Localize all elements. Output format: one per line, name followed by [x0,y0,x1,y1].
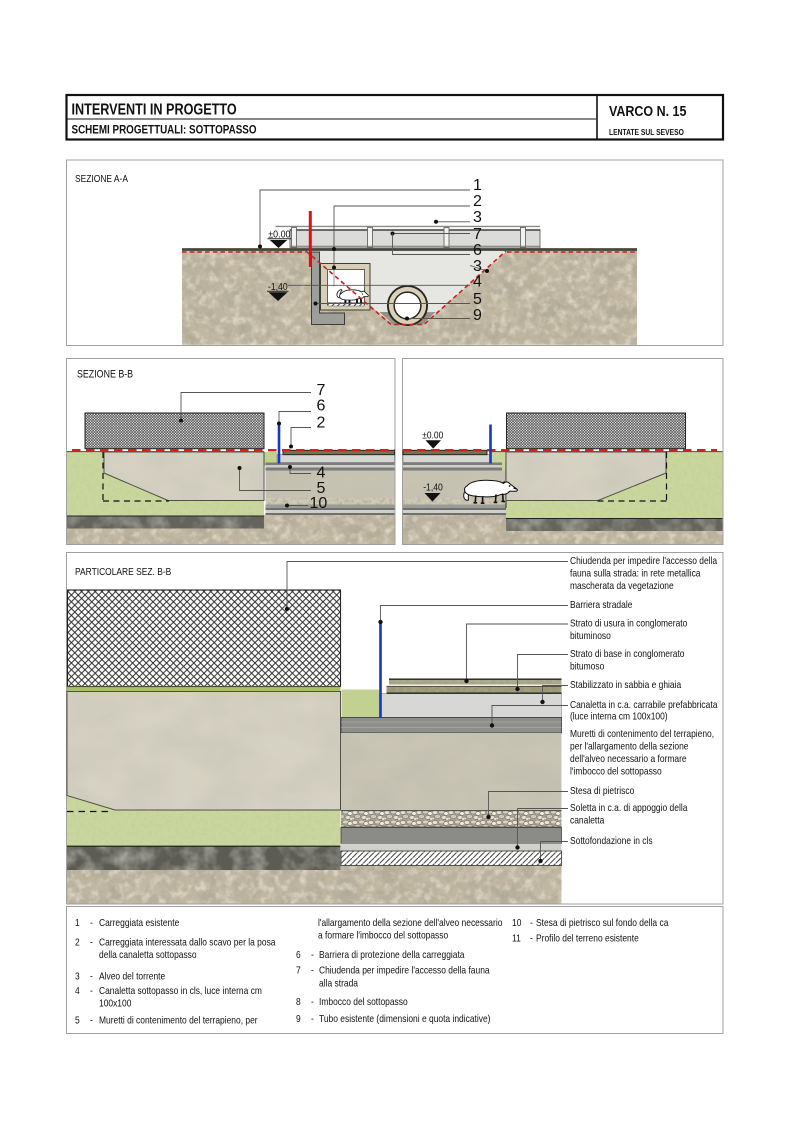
svg-text:PARTICOLARE SEZ. B-B: PARTICOLARE SEZ. B-B [75,567,171,578]
svg-text:Chiudenda per impedire l'acces: Chiudenda per impedire l'accesso della [570,556,717,567]
svg-text:5: 5 [473,291,482,308]
svg-text:100x100: 100x100 [99,999,132,1010]
svg-text:-: - [311,950,314,961]
svg-text:Strato di usura in conglomerat: Strato di usura in conglomerato [570,619,688,630]
svg-text:SEZIONE A-A: SEZIONE A-A [75,174,128,185]
svg-text:7: 7 [296,966,301,977]
svg-text:3: 3 [473,209,482,226]
svg-text:per l'allargamento della sezio: per l'allargamento della sezione [570,742,689,753]
svg-text:4: 4 [473,274,482,291]
svg-text:3: 3 [473,258,482,275]
svg-text:9: 9 [296,1014,301,1025]
svg-text:-1,40: -1,40 [423,481,443,493]
svg-text:1: 1 [473,177,482,194]
svg-text:INTERVENTI IN PROGETTO: INTERVENTI IN PROGETTO [72,102,237,119]
svg-text:Alveo del torrente: Alveo del torrente [99,972,165,983]
svg-text:1: 1 [75,918,80,929]
svg-text:2: 2 [473,193,482,210]
svg-text:-: - [90,918,93,929]
svg-text:Canaletta in c.a. carrabile pr: Canaletta in c.a. carrabile prefabbricat… [570,700,718,711]
svg-text:Soletta in c.a. di appoggio de: Soletta in c.a. di appoggio della [570,803,688,814]
svg-text:2: 2 [317,415,326,432]
svg-text:-: - [90,938,93,949]
svg-text:6: 6 [473,242,482,259]
svg-text:5: 5 [75,1016,80,1027]
svg-text:fauna sulla strada: in rete me: fauna sulla strada: in rete metallica [570,569,701,580]
svg-text:9: 9 [473,307,482,324]
svg-text:bitumoso: bitumoso [570,662,605,673]
svg-text:3: 3 [75,972,80,983]
svg-text:dell'alveo necessario a formar: dell'alveo necessario a formare [570,754,687,765]
svg-text:10: 10 [512,918,522,929]
svg-text:4: 4 [317,465,326,482]
svg-text:6: 6 [317,398,326,415]
svg-text:l'imbocco del sottopasso: l'imbocco del sottopasso [570,767,662,778]
svg-text:6: 6 [296,950,301,961]
svg-text:della canaletta sottopasso: della canaletta sottopasso [99,950,197,961]
svg-text:-: - [311,1014,314,1025]
svg-text:2: 2 [75,938,80,949]
svg-text:-: - [530,918,533,929]
svg-text:Stesa di pietrisco sul fondo d: Stesa di pietrisco sul fondo della ca [536,918,669,929]
svg-text:SCHEMI PROGETTUALI: SOTTOPASSO: SCHEMI PROGETTUALI: SOTTOPASSO [72,123,257,137]
svg-text:Barriera stradale: Barriera stradale [570,600,633,611]
svg-text:canaletta: canaletta [570,816,605,827]
svg-text:4: 4 [75,986,80,997]
svg-text:SEZIONE B-B: SEZIONE B-B [77,369,133,381]
svg-text:-: - [90,1016,93,1027]
svg-text:Carreggiata esistente: Carreggiata esistente [99,918,180,929]
svg-text:Chiudenda per impedire l'acces: Chiudenda per impedire l'accesso della f… [319,966,490,977]
svg-text:10: 10 [310,495,328,512]
svg-text:Imbocco del sottopasso: Imbocco del sottopasso [319,997,408,1008]
svg-text:11: 11 [512,934,521,945]
svg-text:bituminoso: bituminoso [570,631,611,642]
svg-text:Profilo del terreno esistente: Profilo del terreno esistente [536,934,639,945]
svg-text:Canaletta sottopasso in cls, l: Canaletta sottopasso in cls, luce intern… [99,986,262,997]
svg-text:Carreggiata interessata dallo: Carreggiata interessata dallo scavo per … [99,938,276,949]
svg-text:-: - [311,966,314,977]
svg-text:-: - [90,972,93,983]
svg-text:-: - [311,997,314,1008]
svg-text:mascherata da vegetazione: mascherata da vegetazione [570,581,674,592]
svg-text:7: 7 [473,226,482,243]
svg-text:7: 7 [317,382,326,399]
svg-text:Stesa di pietrisco: Stesa di pietrisco [570,786,635,797]
svg-text:Tubo esistente (dimensioni e q: Tubo esistente (dimensioni e quota indic… [319,1014,491,1025]
svg-text:Stabilizzato in sabbia e ghiai: Stabilizzato in sabbia e ghiaia [570,680,681,691]
svg-text:Strato di base in conglomerato: Strato di base in conglomerato [570,649,685,660]
svg-text:-: - [530,934,533,945]
svg-text:-: - [90,986,93,997]
svg-text:Sottofondazione in cls: Sottofondazione in cls [570,836,653,847]
svg-text:alla strada: alla strada [319,979,358,990]
svg-text:Barriera di protezione della c: Barriera di protezione della carreggiata [319,950,465,961]
svg-text:8: 8 [296,997,301,1008]
svg-text:LENTATE SUL SEVESO: LENTATE SUL SEVESO [609,128,684,137]
svg-text:VARCO N. 15: VARCO N. 15 [609,103,687,120]
svg-text:a formare l'imbocco del sottop: a formare l'imbocco del sottopasso [318,931,448,942]
svg-text:Muretti di contenimento del te: Muretti di contenimento del terrapieno, [570,729,714,740]
svg-text:±0.00: ±0.00 [422,430,443,442]
svg-text:(luce interna cm 100x100): (luce interna cm 100x100) [570,712,668,723]
svg-text:Muretti di contenimento del te: Muretti di contenimento del terrapieno, … [99,1016,258,1027]
svg-text:l'allargamento della sezione d: l'allargamento della sezione dell'alveo … [318,918,503,929]
